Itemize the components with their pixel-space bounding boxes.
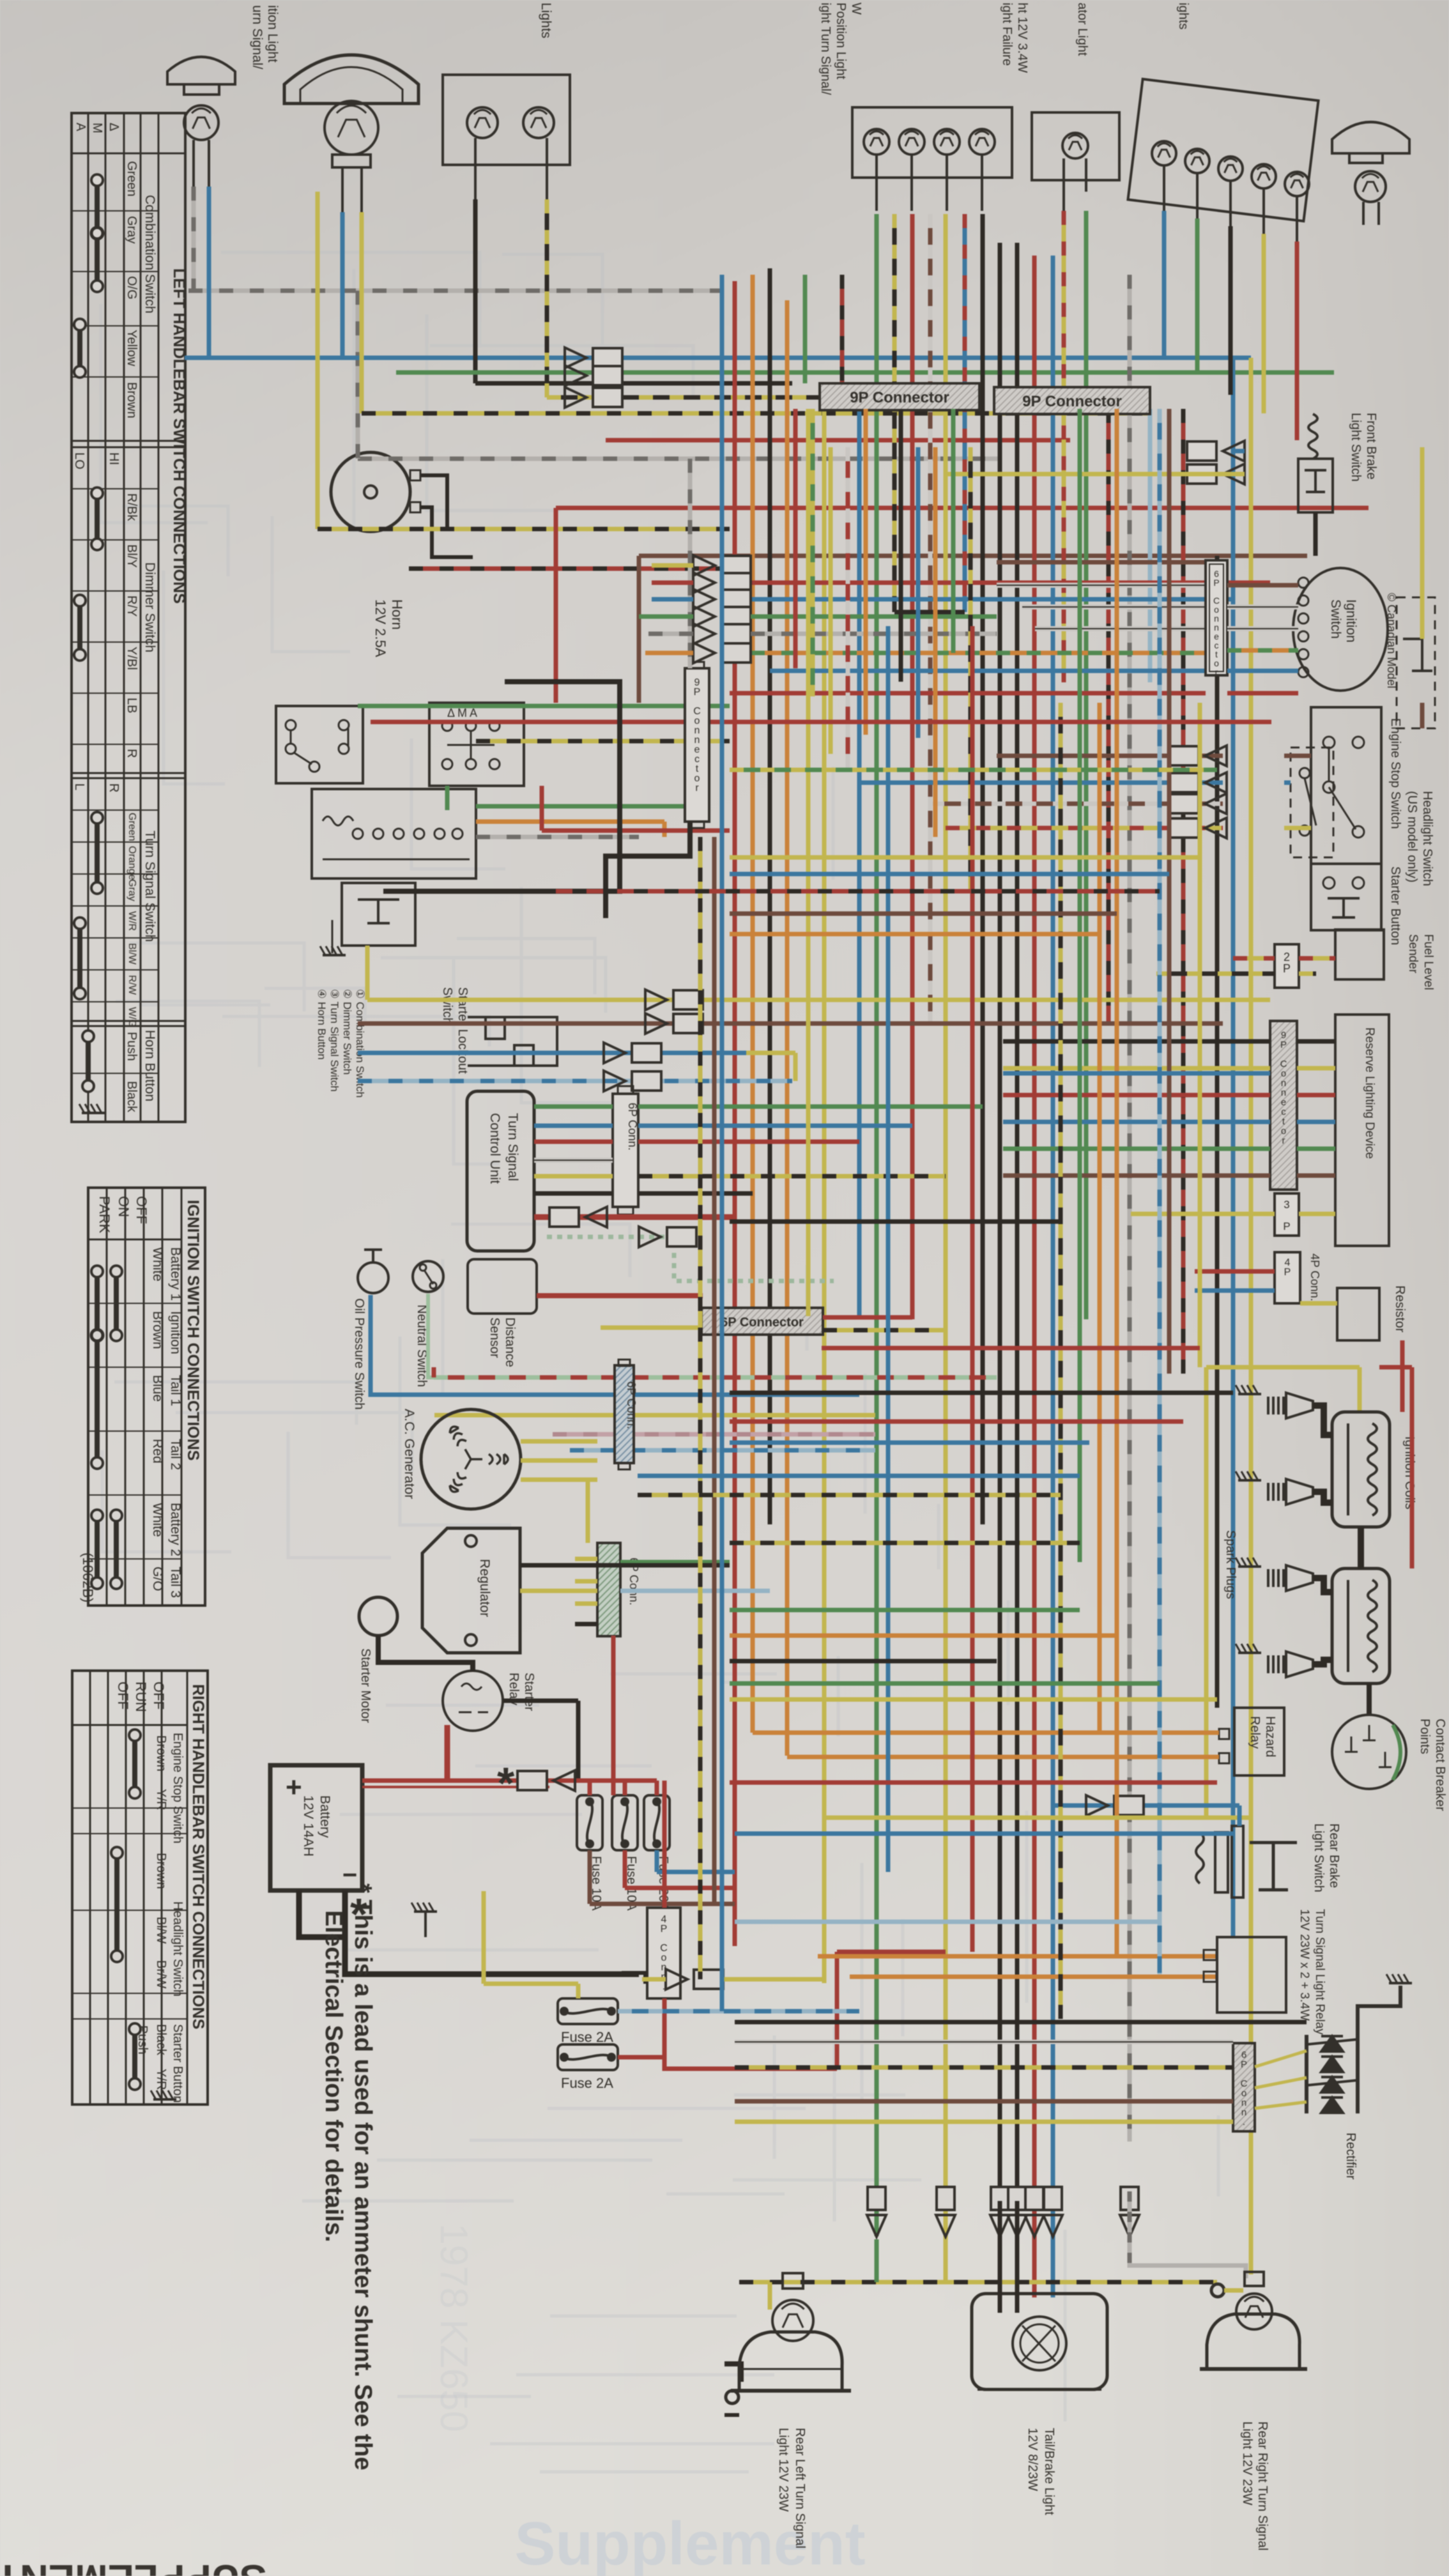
svg-text:9P Connector: 9P Connector: [850, 389, 949, 406]
svg-text:IGNITION SWITCH CONNECTIONS: IGNITION SWITCH CONNECTIONS: [184, 1200, 202, 1460]
svg-text:Starter Button: Starter Button: [171, 2024, 185, 2103]
svg-text:Relay: Relay: [1248, 1716, 1262, 1749]
svg-text:RUN: RUN: [133, 1682, 149, 1712]
svg-text:Fuse 2A: Fuse 2A: [561, 2075, 613, 2091]
svg-text:Rear Left Turn Signal: Rear Left Turn Signal: [793, 2428, 807, 2549]
svg-text:12V 14AH: 12V 14AH: [301, 1795, 316, 1857]
svg-text:ights: ights: [1176, 3, 1190, 29]
svg-text:Lights: Lights: [539, 3, 553, 38]
svg-text:Green: Green: [126, 813, 137, 841]
svg-text:R/Bk: R/Bk: [125, 493, 139, 521]
svg-text:Δ M A: Δ M A: [447, 707, 477, 719]
svg-text:OFF: OFF: [134, 1196, 149, 1224]
svg-text:LO: LO: [72, 452, 86, 470]
svg-text:9P Connector: 9P Connector: [692, 677, 703, 792]
svg-text:Br/W: Br/W: [154, 1960, 168, 1989]
svg-text:Ignition: Ignition: [1344, 599, 1358, 643]
svg-text:Light Switch: Light Switch: [1312, 1823, 1326, 1892]
svg-text:Tail 2: Tail 2: [168, 1439, 183, 1470]
svg-text:Y/Bl: Y/Bl: [125, 647, 139, 670]
svg-text:ON: ON: [116, 1196, 132, 1217]
svg-text:W/R: W/R: [126, 911, 137, 931]
svg-text:ht 12V 3.4W: ht 12V 3.4W: [1015, 3, 1029, 73]
svg-text:Tail 3: Tail 3: [168, 1567, 183, 1598]
svg-text:SUPPLEMENT: SUPPLEMENT: [0, 2556, 266, 2576]
svg-text:W/G: W/G: [126, 1007, 137, 1027]
svg-text:Horn: Horn: [389, 599, 405, 630]
svg-text:*: *: [497, 1758, 515, 1808]
svg-text:Ignition: Ignition: [168, 1311, 183, 1354]
svg-text:Fuel Level: Fuel Level: [1422, 934, 1435, 990]
svg-text:Light 12V 23W: Light 12V 23W: [776, 2428, 790, 2511]
svg-text:Oil Pressure Switch: Oil Pressure Switch: [352, 1298, 366, 1410]
svg-text:Brown: Brown: [154, 1735, 168, 1772]
svg-text:ight Failure: ight Failure: [1000, 3, 1014, 66]
svg-text:Reserve Lighting Device: Reserve Lighting Device: [1363, 1027, 1376, 1159]
svg-text:Rear Right Turn Signal: Rear Right Turn Signal: [1255, 2421, 1269, 2550]
svg-text:Brown: Brown: [154, 1853, 168, 1889]
svg-text:Points: Points: [1418, 1719, 1432, 1754]
svg-text:PARK: PARK: [96, 1196, 112, 1234]
svg-text:1978 KZ650: 1978 KZ650: [433, 2223, 475, 2432]
svg-text:Switch: Switch: [1328, 599, 1343, 639]
svg-text:Light 12V 23W: Light 12V 23W: [1240, 2421, 1254, 2505]
svg-text:Position Light: Position Light: [834, 3, 848, 80]
svg-text:Blue: Blue: [150, 1375, 165, 1402]
svg-text:Δ: Δ: [107, 123, 121, 131]
svg-text:9P Connector: 9P Connector: [1022, 393, 1122, 410]
svg-text:Regulator: Regulator: [477, 1559, 492, 1617]
svg-text:Brown: Brown: [150, 1311, 165, 1349]
svg-text:4P Conn.: 4P Conn.: [1308, 1253, 1321, 1301]
svg-text:Turn Signal Switch: Turn Signal Switch: [142, 831, 157, 942]
svg-text:Push: Push: [125, 1032, 139, 1061]
svg-text:Light Switch: Light Switch: [1349, 413, 1363, 482]
svg-text:* This is a lead used for an a: * This is a lead used for an ammeter shu…: [349, 1883, 376, 2471]
svg-text:W: W: [849, 3, 863, 15]
svg-text:6P Connector: 6P Connector: [721, 1315, 804, 1330]
svg-text:Rectifier: Rectifier: [1344, 2133, 1358, 2180]
svg-text:Turn Signal Light Relay: Turn Signal Light Relay: [1313, 1909, 1326, 2035]
svg-text:Green: Green: [125, 161, 139, 197]
svg-text:Turn Signal: Turn Signal: [505, 1113, 520, 1181]
svg-text:Engine Stop Switch: Engine Stop Switch: [1388, 718, 1402, 829]
svg-text:Control Unit: Control Unit: [487, 1113, 502, 1184]
svg-text:Switch: Switch: [440, 987, 454, 1025]
svg-text:Headlight Switch: Headlight Switch: [171, 1901, 185, 1997]
svg-text:4P: 4P: [1282, 1257, 1293, 1276]
svg-text:+: +: [286, 1772, 302, 1803]
svg-text:Black: Black: [125, 1081, 139, 1113]
svg-text:6P Connector: 6P Connector: [1211, 569, 1222, 676]
svg-text:(1062B): (1062B): [80, 1552, 96, 1602]
svg-text:Supplement: Supplement: [514, 2510, 865, 2576]
svg-text:Fuse 2A: Fuse 2A: [561, 2029, 613, 2045]
svg-text:Bl/W: Bl/W: [126, 943, 137, 965]
svg-text:Starter: Starter: [522, 1673, 536, 1711]
svg-text:R: R: [107, 783, 121, 792]
svg-text:Combination Switch: Combination Switch: [142, 195, 157, 314]
svg-text:Starter Motor: Starter Motor: [358, 1648, 372, 1723]
svg-text:LB: LB: [125, 698, 139, 713]
svg-text:A: A: [73, 123, 88, 132]
svg-text:Tail 1: Tail 1: [168, 1375, 183, 1406]
svg-text:Ignition Coils: Ignition Coils: [1402, 1436, 1416, 1510]
svg-text:R/W: R/W: [126, 975, 137, 995]
svg-text:RIGHT HANDLEBAR SWITCH CONNECT: RIGHT HANDLEBAR SWITCH CONNECTIONS: [189, 1684, 207, 2029]
svg-text:9P Connector: 9P Connector: [1278, 1030, 1289, 1145]
svg-text:③ Turn Signal Switch: ③ Turn Signal Switch: [328, 989, 341, 1092]
svg-text:Sensor: Sensor: [487, 1317, 502, 1358]
svg-text:Distance: Distance: [503, 1317, 517, 1367]
svg-text:Electrical Section for details: Electrical Section for details.: [320, 1910, 347, 2242]
svg-text:6P Conn.: 6P Conn.: [626, 1103, 639, 1151]
svg-text:White: White: [150, 1503, 165, 1537]
svg-text:Horn Button: Horn Button: [142, 1030, 157, 1101]
svg-text:Black: Black: [154, 2024, 168, 2056]
svg-text:Tail/Brake Light: Tail/Brake Light: [1042, 2428, 1056, 2515]
svg-text:urn Signal/: urn Signal/: [250, 5, 264, 70]
svg-text:Yellow: Yellow: [125, 330, 139, 367]
svg-text:Gray: Gray: [126, 879, 137, 901]
svg-text:A.C. Generator: A.C. Generator: [402, 1409, 417, 1499]
svg-text:M: M: [90, 123, 104, 134]
svg-text:Front Brake: Front Brake: [1364, 413, 1378, 479]
svg-text:Engine Stop Switch: Engine Stop Switch: [171, 1733, 185, 1843]
svg-text:ight Turn Signal/: ight Turn Signal/: [818, 3, 832, 95]
svg-text:Battery 2: Battery 2: [168, 1503, 183, 1556]
svg-text:6P Conn.: 6P Conn.: [625, 1381, 638, 1429]
svg-text:Red: Red: [150, 1439, 165, 1464]
svg-text:ition Light: ition Light: [265, 5, 280, 63]
svg-text:Bl/Y: Bl/Y: [125, 544, 139, 568]
svg-text:12V 2.5A: 12V 2.5A: [372, 599, 388, 657]
svg-text:② Dimmer Switch: ② Dimmer Switch: [341, 989, 353, 1075]
svg-text:Sender: Sender: [1406, 934, 1420, 974]
svg-text:R/Y: R/Y: [125, 595, 139, 617]
svg-text:G/O: G/O: [150, 1567, 165, 1591]
svg-text:Battery 1: Battery 1: [168, 1247, 183, 1301]
svg-text:Rear Brake: Rear Brake: [1327, 1823, 1341, 1888]
svg-text:Hazard: Hazard: [1263, 1716, 1277, 1757]
svg-text:Starter Button: Starter Button: [1388, 866, 1402, 945]
svg-text:(US model only): (US model only): [1405, 791, 1419, 882]
svg-text:Y/R: Y/R: [154, 1789, 168, 1810]
svg-text:Spark Plugs: Spark Plugs: [1223, 1530, 1238, 1599]
svg-text:R: R: [125, 749, 139, 758]
svg-text:© Canadian Model: © Canadian Model: [1385, 593, 1398, 688]
svg-text:Resistor: Resistor: [1393, 1285, 1407, 1333]
svg-text:Battery: Battery: [318, 1795, 332, 1838]
svg-text:Contact Breaker: Contact Breaker: [1433, 1719, 1447, 1811]
svg-text:12V 23W x 2 + 3.4W: 12V 23W x 2 + 3.4W: [1298, 1909, 1311, 2021]
svg-text:Orange: Orange: [126, 846, 137, 880]
svg-text:White: White: [150, 1247, 165, 1282]
svg-text:Bl/W: Bl/W: [154, 1917, 168, 1943]
svg-text:OFF: OFF: [151, 1682, 167, 1710]
svg-text:6P Conn.: 6P Conn.: [1239, 2050, 1250, 2126]
svg-text:ator Light: ator Light: [1075, 3, 1089, 56]
svg-text:2P: 2P: [1280, 951, 1293, 974]
svg-text:3 P: 3 P: [1281, 1199, 1293, 1231]
svg-text:HI: HI: [107, 452, 121, 465]
svg-text:Brown: Brown: [125, 382, 139, 418]
svg-text:OFF: OFF: [115, 1682, 131, 1710]
svg-text:Headlight Switch: Headlight Switch: [1420, 791, 1434, 886]
svg-text:12V 8/23W: 12V 8/23W: [1025, 2428, 1039, 2491]
svg-text:④ Horn Button: ④ Horn Button: [316, 989, 328, 1060]
svg-text:Gray: Gray: [125, 216, 139, 243]
svg-text:Dimmer Switch: Dimmer Switch: [142, 562, 157, 652]
svg-text:Y/R: Y/R: [154, 2069, 168, 2090]
svg-text:LEFT HANDLEBAR SWITCH CONNECTI: LEFT HANDLEBAR SWITCH CONNECTIONS: [170, 268, 188, 604]
svg-text:L: L: [72, 783, 86, 790]
svg-text:O/G: O/G: [125, 276, 139, 300]
